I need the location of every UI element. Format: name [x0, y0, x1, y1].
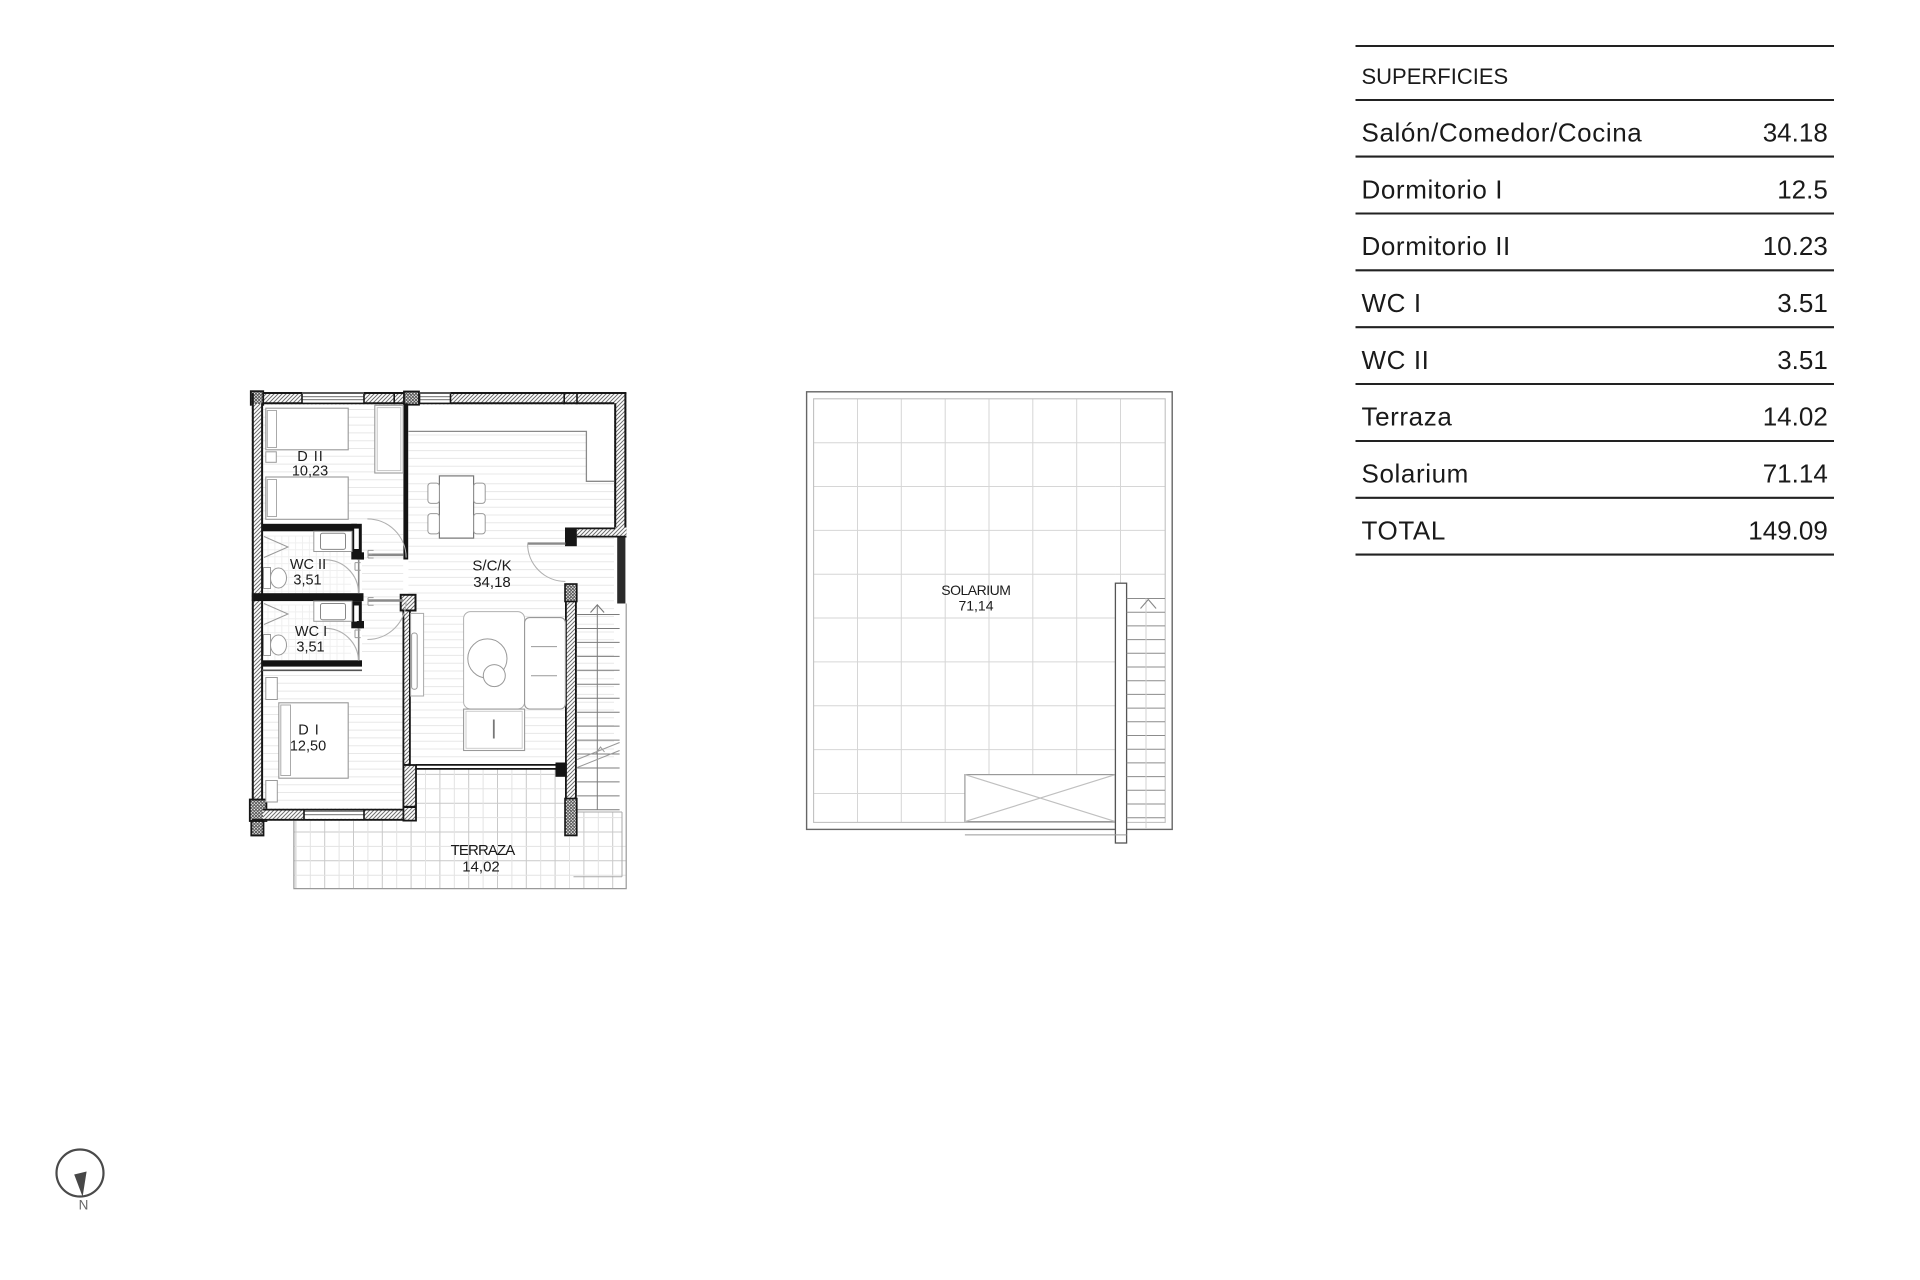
svg-text:D II: D II [297, 449, 324, 465]
svg-text:WC II: WC II [290, 557, 326, 573]
svg-text:N: N [79, 1198, 89, 1213]
svg-text:14.02: 14.02 [1763, 402, 1828, 432]
svg-text:12.5: 12.5 [1777, 174, 1828, 204]
svg-text:3,51: 3,51 [293, 572, 321, 588]
svg-text:34.18: 34.18 [1763, 118, 1828, 148]
svg-text:Salón/Comedor/Cocina: Salón/Comedor/Cocina [1362, 118, 1643, 148]
svg-text:D I: D I [298, 722, 320, 738]
svg-text:14,02: 14,02 [462, 859, 500, 876]
svg-text:WC II: WC II [1362, 345, 1430, 375]
svg-text:Terraza: Terraza [1362, 402, 1453, 432]
svg-text:WC I: WC I [295, 624, 327, 640]
svg-text:SUPERFICIES: SUPERFICIES [1362, 64, 1509, 89]
svg-text:WC I: WC I [1362, 288, 1422, 318]
svg-text:71,14: 71,14 [958, 598, 993, 614]
svg-text:Dormitorio II: Dormitorio II [1362, 231, 1511, 261]
svg-text:3.51: 3.51 [1777, 288, 1828, 318]
svg-text:149.09: 149.09 [1748, 515, 1828, 545]
svg-text:12,50: 12,50 [290, 738, 326, 754]
svg-text:10,23: 10,23 [292, 464, 328, 480]
svg-text:SOLARIUM: SOLARIUM [941, 582, 1010, 598]
svg-text:Solarium: Solarium [1362, 459, 1469, 489]
svg-text:34,18: 34,18 [473, 574, 511, 591]
svg-text:Dormitorio I: Dormitorio I [1362, 174, 1504, 204]
svg-text:3.51: 3.51 [1777, 345, 1828, 375]
svg-text:10.23: 10.23 [1763, 231, 1828, 261]
svg-text:71.14: 71.14 [1763, 459, 1828, 489]
svg-text:TERRAZA: TERRAZA [451, 842, 516, 859]
svg-text:3,51: 3,51 [296, 639, 324, 655]
svg-text:S/C/K: S/C/K [472, 557, 511, 574]
svg-text:TOTAL: TOTAL [1362, 515, 1446, 545]
